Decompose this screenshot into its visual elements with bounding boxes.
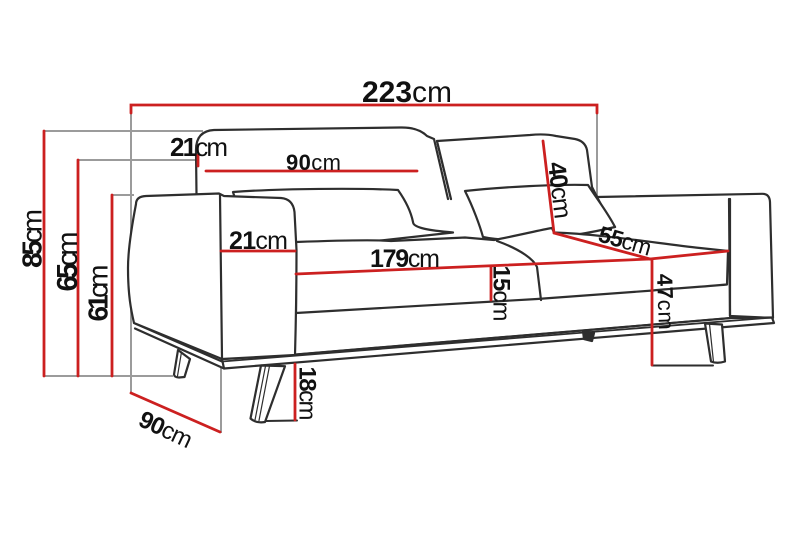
- svg-text:85cm: 85cm: [17, 209, 48, 268]
- svg-text:61cm: 61cm: [83, 265, 114, 322]
- svg-text:47cm: 47cm: [652, 273, 679, 330]
- svg-text:223cm: 223cm: [362, 76, 452, 109]
- svg-text:90cm: 90cm: [286, 150, 341, 175]
- svg-text:18cm: 18cm: [294, 367, 321, 421]
- svg-text:179cm: 179cm: [370, 245, 440, 273]
- svg-text:15cm: 15cm: [488, 266, 515, 322]
- svg-text:65cm: 65cm: [52, 232, 84, 292]
- svg-text:21cm: 21cm: [170, 132, 228, 162]
- svg-text:21cm: 21cm: [229, 227, 288, 255]
